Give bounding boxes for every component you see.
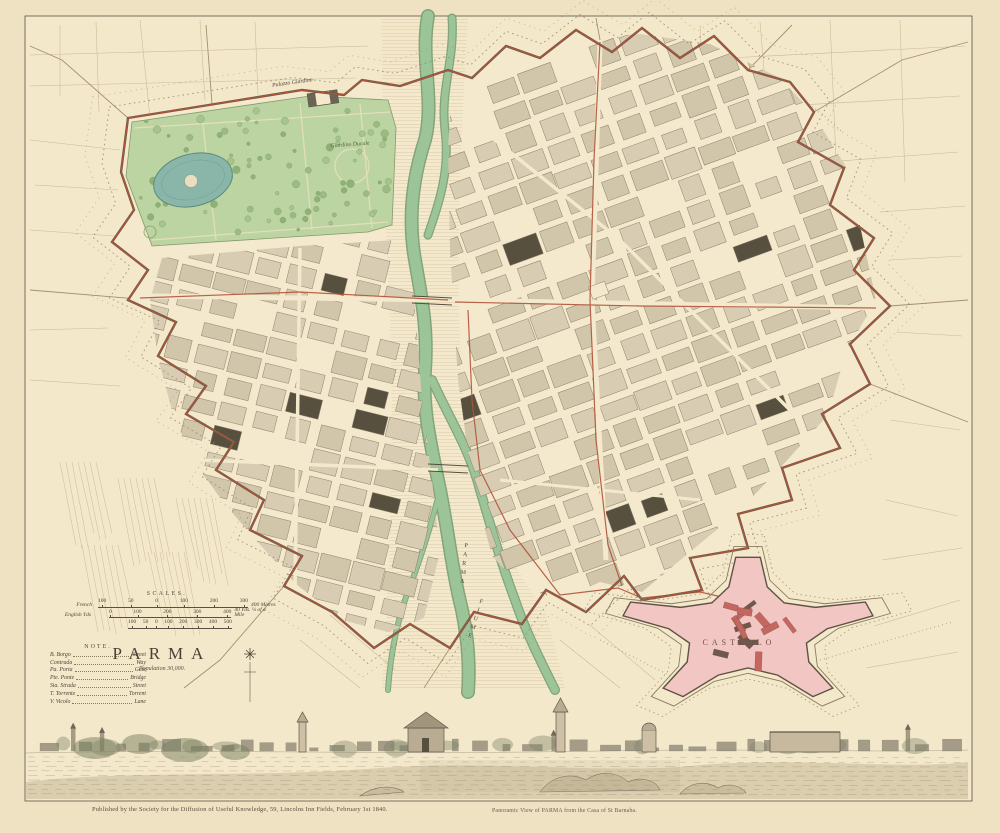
scale-tick: 100 — [180, 599, 188, 604]
scale-tick: 50 — [128, 599, 134, 604]
note-abbr: B. Borgo — [50, 652, 71, 658]
scale-tick: 200 — [163, 610, 171, 615]
scale-row: English Yds010020030040040 Yds. ¼ of a M… — [58, 609, 276, 618]
scale-tick: 300 — [240, 599, 248, 604]
note-abbr: Sta. Strada — [50, 683, 76, 689]
scale-row-end: 40 Yds. ¼ of a Mile — [231, 608, 276, 618]
scale-tick: 300 — [193, 610, 201, 615]
scale-tick: 200 — [179, 620, 187, 625]
scale-tick: 0 — [155, 620, 158, 625]
note-abbr: Contrada — [50, 660, 72, 666]
note-row: Pte. PonteBridge — [50, 673, 146, 681]
scale-row-label: English Yds — [58, 613, 93, 618]
river-label-fiume: FIUME — [465, 598, 485, 643]
note-legend: NOTE. B. BorgoStreetContradaWayPa. Porta… — [50, 644, 146, 705]
note-abbr: V. Vicolo — [50, 699, 70, 705]
note-row: Sta. StradaStreet — [50, 681, 146, 689]
river-label-parma: PARMA — [459, 543, 470, 588]
note-meaning: Gate — [135, 667, 146, 673]
scale-tick: 100 — [98, 599, 106, 604]
scale-tick: 400 — [209, 620, 217, 625]
scale-tick: 50 — [143, 620, 149, 625]
text-overlay: PARMA Population 30,000. SCALES. French1… — [0, 0, 1000, 833]
note-row: Pa. PortaGate — [50, 666, 146, 674]
scale-row: 100500100200300400500 — [58, 620, 276, 629]
palazzo-giardino-label: Palazzo Giardino — [272, 77, 313, 89]
note-meaning: Lane — [134, 699, 146, 705]
note-row: V. VicoloLane — [50, 697, 146, 705]
note-meaning: Street — [133, 683, 146, 689]
note-row: T. TorrenteTorrent — [50, 689, 146, 697]
scale-tick: 500 — [224, 620, 232, 625]
note-row: B. BorgoStreet — [50, 650, 146, 658]
scale-tick: 100 — [133, 610, 141, 615]
scale-tick: 200 — [210, 599, 218, 604]
note-meaning: Way — [136, 660, 146, 666]
scale-row: French100500100200300400 Mètres — [58, 599, 276, 608]
map-sheet: PARMA Population 30,000. SCALES. French1… — [0, 0, 1000, 833]
note-meaning: Bridge — [130, 675, 146, 681]
scale-bars: SCALES. French100500100200300400 MètresE… — [58, 591, 276, 629]
note-abbr: Pa. Porta — [50, 667, 73, 673]
scale-tick: 100 — [164, 620, 172, 625]
note-row: ContradaWay — [50, 658, 146, 666]
scales-heading: SCALES. — [58, 591, 276, 597]
note-abbr: T. Torrente — [50, 691, 75, 697]
scale-row-label: French — [58, 603, 94, 608]
scale-tick: 0 — [155, 599, 158, 604]
scale-tick: 400 — [223, 610, 231, 615]
scale-tick: 100 — [128, 620, 136, 625]
note-abbr: Pte. Ponte — [50, 675, 74, 681]
note-meaning: Torrent — [129, 691, 146, 697]
citadel-label: CASTELLO — [664, 638, 814, 647]
scale-tick: 300 — [194, 620, 202, 625]
scale-tick: 0 — [109, 610, 112, 615]
imprint: Published by the Society for the Diffusi… — [92, 806, 388, 813]
note-meaning: Street — [133, 652, 146, 658]
giardino-ducale-label: Giardino Ducale — [330, 141, 370, 150]
panorama-caption: Panoramic View of PARMA from the Casa of… — [492, 808, 637, 814]
